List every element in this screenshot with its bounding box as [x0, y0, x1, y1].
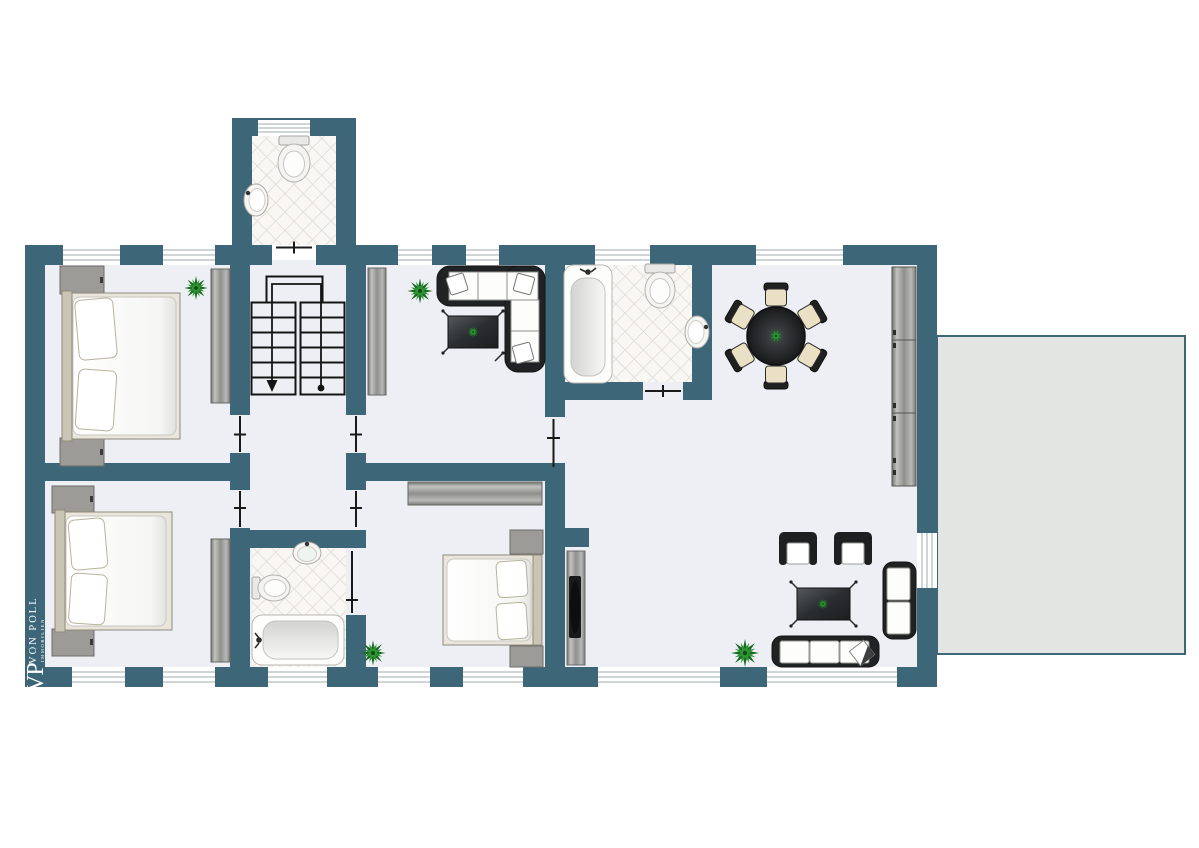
bed-headboard: [62, 291, 72, 441]
nightstand: [60, 266, 104, 294]
floor-plan-canvas: VP VON POLL IMMOBILIEN: [0, 0, 1199, 848]
toilet-bowl: [650, 279, 670, 304]
living-wall-stub: [545, 528, 589, 547]
hall-wall-right-upper: [346, 265, 366, 415]
window: [63, 245, 120, 265]
bedroom-divider-right: [346, 463, 565, 481]
bed-headboard: [55, 510, 65, 632]
pillow: [496, 602, 528, 640]
wardrobe: [211, 539, 230, 662]
nightstand-handle: [100, 277, 103, 283]
bath-bottom-wall-left: [230, 528, 250, 667]
nightstand: [510, 530, 543, 554]
pillow: [68, 573, 107, 625]
nightstand: [52, 486, 94, 513]
bedroom-divider-left: [25, 463, 250, 481]
logo-subtitle: IMMOBILIEN: [40, 618, 45, 662]
sofa-pillow: [512, 342, 534, 364]
washbasin-bowl: [249, 189, 265, 212]
window: [163, 667, 215, 687]
window: [378, 667, 430, 687]
tall-cabinet: [892, 267, 916, 486]
living-wall-lower: [545, 470, 565, 667]
pillow: [68, 518, 108, 571]
dining-chair: [764, 283, 788, 306]
faucet-icon: [246, 191, 250, 195]
washbasin-bowl: [298, 547, 317, 562]
wardrobe: [408, 482, 542, 505]
nightstand: [60, 438, 104, 466]
window: [163, 245, 215, 265]
toilet-bowl: [284, 151, 305, 177]
sofa-pillow: [513, 273, 535, 295]
logo-initials: VP: [23, 663, 49, 692]
stair-start-dot: [318, 385, 325, 392]
dining-chair: [764, 366, 788, 389]
nightstand: [510, 646, 543, 667]
window: [767, 667, 897, 687]
pillow: [74, 297, 117, 360]
toilet-bowl: [264, 580, 286, 597]
logo-name: VON POLL: [28, 596, 39, 664]
nightstand-handle: [90, 496, 93, 502]
faucet-icon: [704, 325, 708, 329]
bathtub-basin: [263, 621, 338, 659]
window: [398, 245, 432, 265]
washbasin-bowl: [688, 321, 704, 344]
bath-bottom-wall-right: [346, 615, 366, 667]
window: [463, 667, 523, 687]
wardrobe: [211, 269, 230, 403]
nightstand: [52, 629, 94, 656]
window: [268, 667, 327, 687]
faucet-icon: [585, 269, 591, 275]
window: [72, 667, 125, 687]
wc-wall-right: [336, 118, 356, 265]
tv-sideboard: [567, 551, 585, 665]
window: [258, 120, 310, 136]
window: [595, 245, 650, 265]
bathtub-basin: [571, 278, 605, 376]
pillow: [75, 369, 117, 432]
wardrobe: [368, 268, 386, 395]
faucet-icon: [305, 542, 309, 546]
armchair: [834, 532, 872, 565]
floor-plan-page: VP VON POLL IMMOBILIEN: [0, 0, 1199, 848]
nightstand-handle: [90, 639, 93, 645]
window: [466, 245, 499, 265]
hall-wall-left-upper: [230, 265, 250, 415]
window: [756, 245, 843, 265]
terrace: [937, 336, 1185, 654]
bathroom-top-wall-bottom-a: [545, 382, 643, 400]
faucet-icon: [256, 637, 262, 643]
terrace-door: [917, 533, 937, 588]
sofa-three-seat: [772, 636, 879, 667]
sofa-two-seat: [883, 562, 916, 639]
pillow: [496, 560, 528, 598]
wall-right: [917, 245, 937, 687]
bed-headboard: [533, 555, 542, 645]
armchair: [779, 532, 817, 565]
window: [598, 667, 720, 687]
nightstand-handle: [100, 449, 103, 455]
